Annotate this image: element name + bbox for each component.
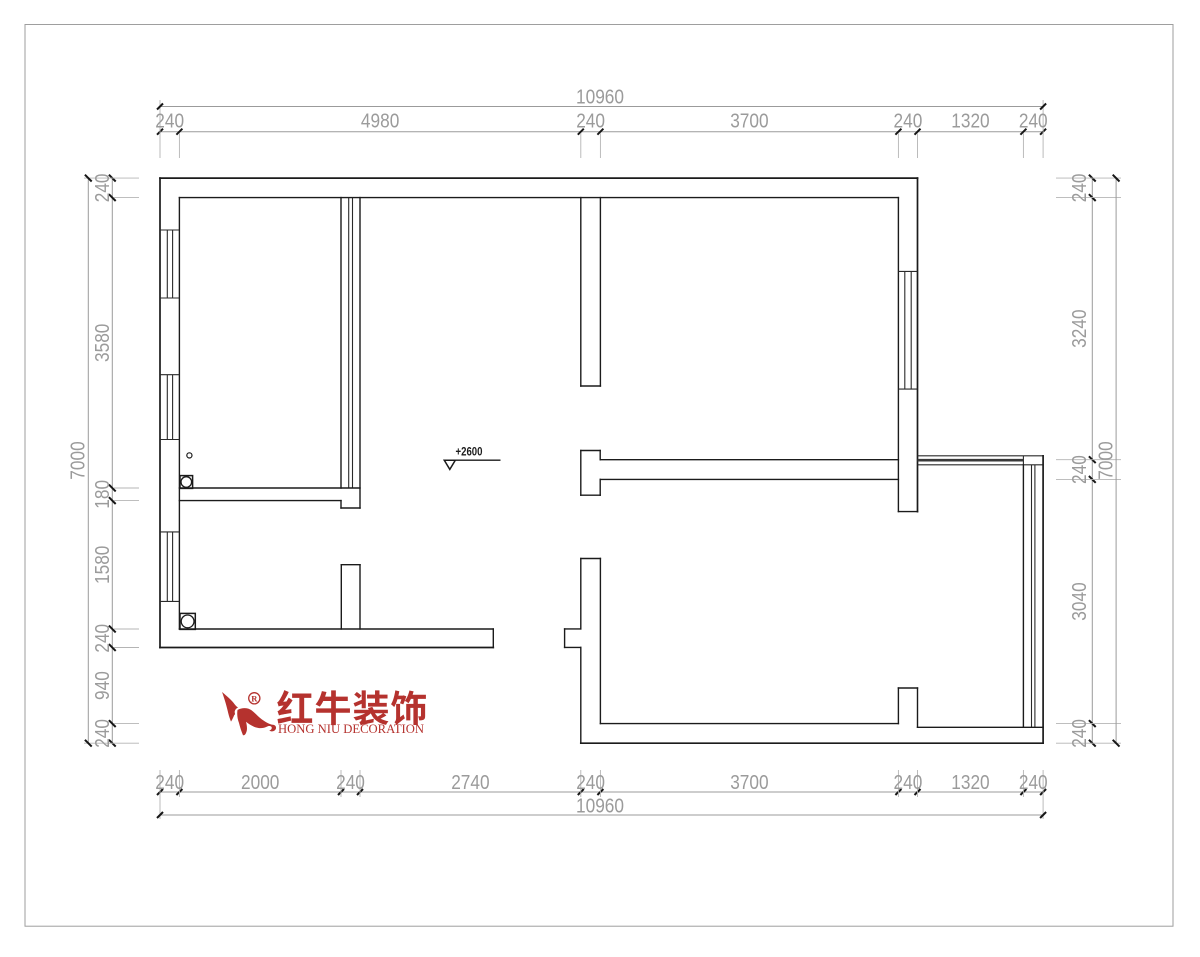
svg-text:2000: 2000 [241, 771, 279, 794]
svg-text:1320: 1320 [951, 771, 989, 794]
svg-text:240: 240 [336, 771, 365, 794]
svg-text:3700: 3700 [730, 771, 768, 794]
svg-text:HONG NIU DECORATION: HONG NIU DECORATION [278, 722, 424, 736]
svg-text:7000: 7000 [1094, 441, 1117, 479]
svg-text:10960: 10960 [576, 794, 624, 817]
svg-text:940: 940 [91, 671, 114, 700]
svg-text:3700: 3700 [730, 110, 768, 133]
svg-text:240: 240 [1019, 771, 1048, 794]
svg-text:240: 240 [155, 110, 184, 133]
svg-text:240: 240 [91, 173, 114, 202]
svg-text:240: 240 [91, 624, 114, 653]
svg-text:180: 180 [91, 480, 114, 509]
svg-text:7000: 7000 [67, 441, 90, 479]
svg-text:1580: 1580 [91, 546, 114, 584]
svg-text:240: 240 [576, 110, 605, 133]
svg-text:1320: 1320 [951, 110, 989, 133]
svg-text:240: 240 [1068, 719, 1091, 748]
svg-text:240: 240 [576, 771, 605, 794]
svg-text:240: 240 [155, 771, 184, 794]
svg-text:R: R [251, 694, 258, 704]
svg-text:3240: 3240 [1068, 309, 1091, 347]
svg-text:3040: 3040 [1068, 582, 1091, 620]
svg-text:240: 240 [91, 719, 114, 748]
svg-text:240: 240 [1068, 173, 1091, 202]
svg-text:3580: 3580 [91, 324, 114, 362]
svg-text:240: 240 [894, 110, 923, 133]
svg-text:2740: 2740 [451, 771, 489, 794]
svg-text:240: 240 [1019, 110, 1048, 133]
svg-text:+2600: +2600 [456, 447, 483, 459]
svg-text:240: 240 [1068, 455, 1091, 484]
svg-text:240: 240 [894, 771, 923, 794]
svg-text:4980: 4980 [361, 110, 399, 133]
svg-text:10960: 10960 [576, 86, 624, 109]
